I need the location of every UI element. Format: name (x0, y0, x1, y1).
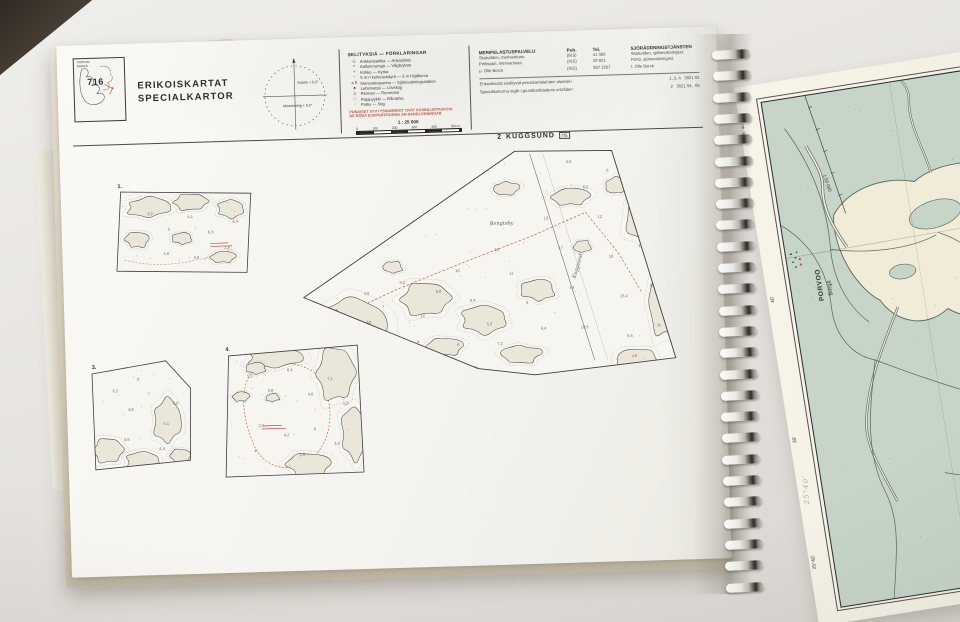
svg-text:3,9: 3,9 (194, 255, 200, 260)
svg-text:9,2: 9,2 (399, 280, 405, 285)
scale-tick: 500 m (451, 124, 461, 128)
compass-rose: Eranto + 5,5° Missvisning + 5,5° (253, 52, 337, 138)
index-region-bottom: BORGÅ (77, 65, 88, 69)
special-charts-drawing: 2,84,679,2126,8108,45,2151196,413171410,… (59, 122, 732, 577)
svg-text:4,2: 4,2 (284, 432, 290, 437)
scale-tick: 300 (411, 125, 417, 129)
svg-text:6,2: 6,2 (112, 388, 118, 393)
inset3-label: 3. (92, 365, 97, 371)
place-label: Emäsalo (349, 320, 372, 332)
svg-text:8,2: 8,2 (583, 184, 589, 189)
city-label-sv: Borgå (825, 279, 834, 296)
svg-text:2,9: 2,9 (259, 423, 265, 428)
declination-label-top: Eranto + 5,5° (297, 80, 319, 85)
svg-text:6,4: 6,4 (541, 325, 547, 330)
svg-text:4,1: 4,1 (187, 214, 193, 219)
svg-text:4,6: 4,6 (163, 251, 169, 256)
scale-tick: 0 (356, 127, 358, 131)
svg-text:5,4: 5,4 (232, 219, 238, 224)
legend-block: SELITYKSIÄ — FÖRKLARINGAR ⚓Ankkuripaikka… (348, 49, 467, 136)
svg-text:5,2: 5,2 (247, 373, 253, 378)
road-network (766, 88, 960, 606)
latitude-tick-40: 40' (769, 296, 776, 303)
svg-text:5,8: 5,8 (343, 400, 349, 405)
map-outer-frame: 1:50 000 PORVOO Borgå (756, 54, 960, 611)
svg-text:8,4: 8,4 (470, 298, 476, 303)
chart-sheet-number: 716 (87, 77, 104, 87)
right-page-sea-chart: 25°40' 40' 35' 25°40' 25°40' (734, 40, 960, 622)
svg-text:3,6: 3,6 (124, 437, 130, 442)
latitude-tick-35: 35' (792, 436, 799, 443)
svg-text:4,8: 4,8 (128, 407, 134, 412)
place-label: Bengtsby (489, 220, 514, 227)
svg-text:5,6: 5,6 (566, 159, 572, 164)
svg-text:5,1: 5,1 (163, 421, 169, 426)
svg-text:3,6: 3,6 (658, 360, 664, 365)
svg-text:4,6: 4,6 (308, 391, 314, 396)
svg-text:6,3: 6,3 (208, 229, 214, 234)
city-label-fi: PORVOO (814, 268, 826, 301)
porvoo-city-marks (789, 251, 802, 268)
svg-text:3,4: 3,4 (334, 441, 340, 446)
page-title-sv: SPECIALKARTOR (138, 90, 234, 106)
page-title: ERIKOISKARTAT SPECIALKARTOR (137, 77, 234, 106)
map-area: 1:50 000 PORVOO Borgå (760, 58, 960, 607)
left-page-special-charts: PORVOO BORGÅ 716 ERIKOISKARTAT SPECIALKA… (56, 26, 731, 577)
north-arrow-icon (292, 58, 295, 63)
coord-label-top-left: 25°40' (740, 123, 748, 138)
svg-text:13,4: 13,4 (620, 293, 629, 298)
header-divider-1 (338, 50, 341, 134)
svg-text:2,8: 2,8 (224, 245, 230, 250)
svg-text:4,4: 4,4 (159, 446, 165, 451)
svg-text:6,6: 6,6 (173, 400, 179, 405)
sea-chart-drawing: 1:50 000 PORVOO Borgå (761, 59, 960, 606)
inset1-label: 1. (117, 184, 122, 190)
scale-tick: 200 (392, 126, 398, 130)
svg-text:6,8: 6,8 (436, 289, 442, 294)
coord-label-bottom-left: 25°40' (810, 555, 818, 570)
scale-tick: 400 (431, 124, 437, 128)
photo-of-nautical-chart-atlas: PORVOO BORGÅ 716 ERIKOISKARTAT SPECIALKA… (0, 0, 960, 622)
svg-text:3,2: 3,2 (147, 211, 153, 216)
header-divider-2 (468, 46, 471, 130)
svg-text:5,6: 5,6 (299, 452, 305, 457)
rescue-contacts-block: MERIPELASTUSPALVELU Puh. Tel. SJÖRÄDDNIN… (479, 44, 700, 95)
binding-coil (726, 582, 764, 593)
inset4-label: 4. (225, 347, 230, 353)
svg-text:7,1: 7,1 (327, 376, 333, 381)
svg-text:4,6: 4,6 (364, 291, 370, 296)
svg-text:4,8: 4,8 (632, 353, 638, 358)
svg-text:9,6: 9,6 (627, 333, 633, 338)
svg-text:3,8: 3,8 (267, 388, 273, 393)
declination-label-bottom: Missvisning + 5,5° (283, 103, 313, 108)
svg-text:5,2: 5,2 (487, 321, 493, 326)
pencil-annotation: 25°40' (802, 475, 812, 505)
scale-tick: 100 (372, 126, 378, 130)
svg-text:6,4: 6,4 (287, 367, 293, 372)
index-map-box: PORVOO BORGÅ 716 (73, 57, 127, 123)
legend-items: ⚓Ankkuripaikka — Ankarplats≈Aallonmurtaj… (348, 56, 466, 108)
svg-text:7,2: 7,2 (497, 341, 503, 346)
svg-text:10,6: 10,6 (581, 324, 590, 329)
